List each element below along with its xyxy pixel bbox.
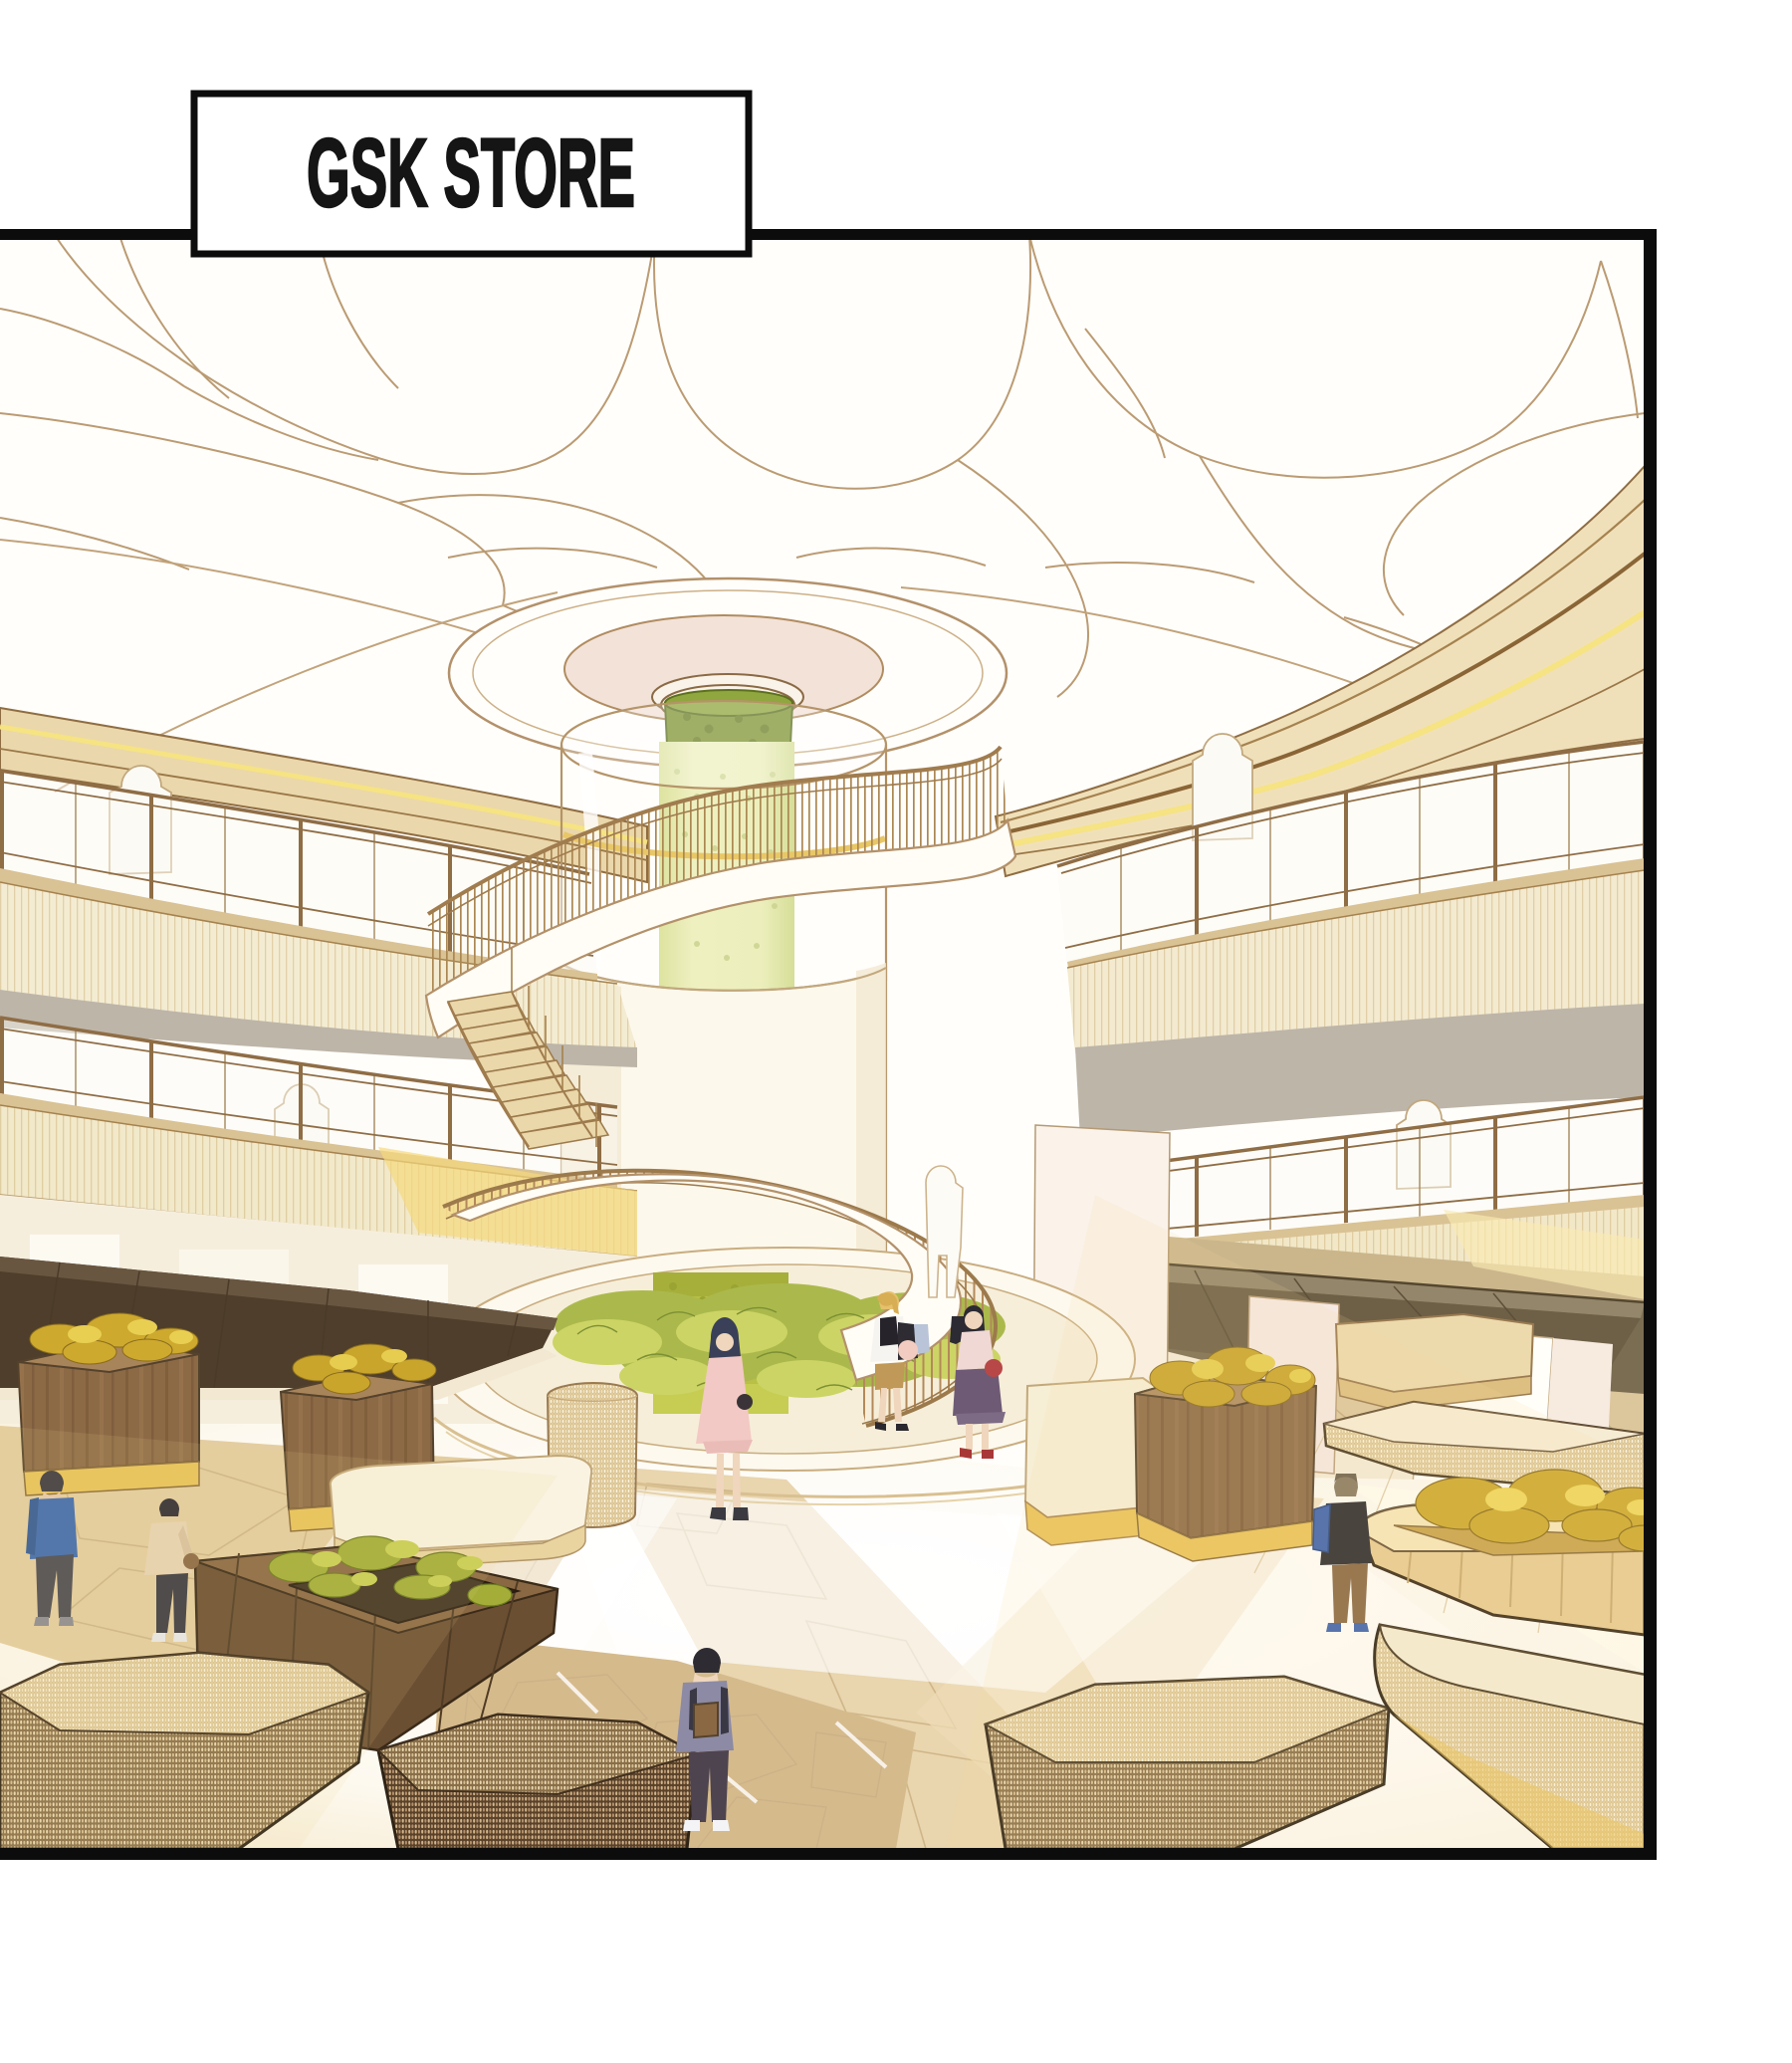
svg-text:GSK STORE: GSK STORE	[307, 118, 635, 227]
